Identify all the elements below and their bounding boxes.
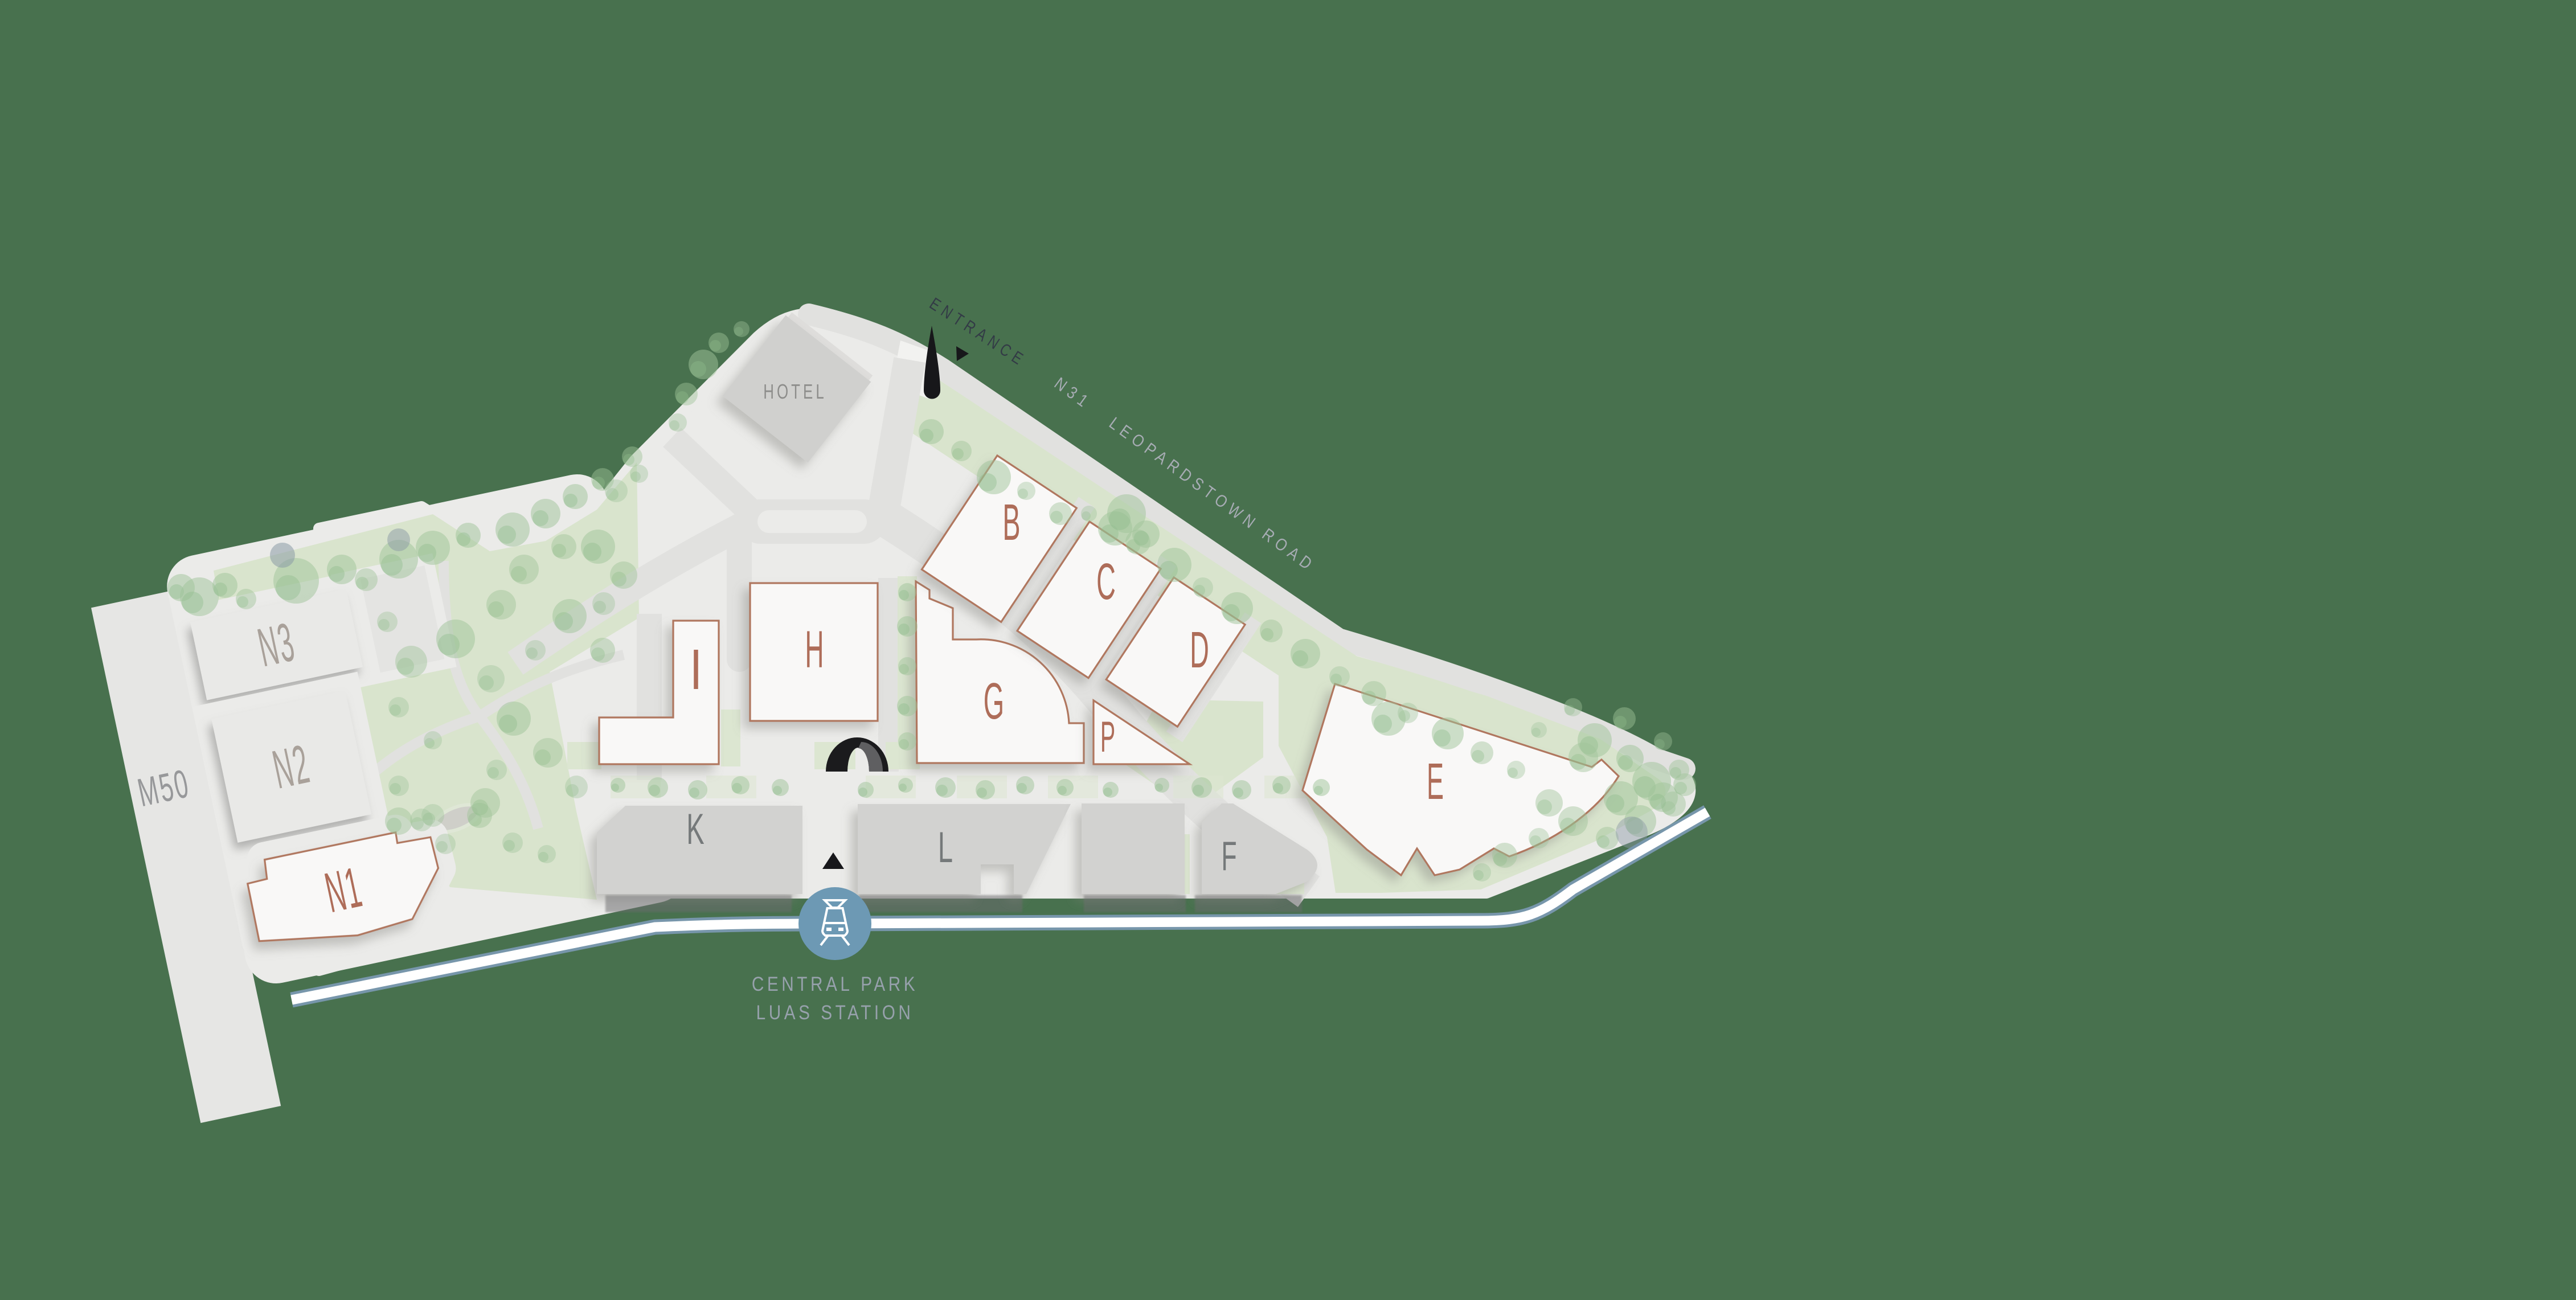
svg-text:P: P xyxy=(1100,712,1115,761)
svg-text:C: C xyxy=(1096,553,1116,610)
svg-text:I: I xyxy=(690,638,702,702)
svg-text:CENTRAL PARK: CENTRAL PARK xyxy=(752,973,918,995)
svg-text:E: E xyxy=(1427,753,1444,810)
svg-text:LUAS STATION: LUAS STATION xyxy=(756,1002,914,1024)
svg-text:B: B xyxy=(1002,494,1020,551)
svg-text:H: H xyxy=(805,621,824,679)
svg-text:HOTEL: HOTEL xyxy=(763,380,827,403)
svg-text:K: K xyxy=(686,806,704,854)
svg-text:F: F xyxy=(1221,833,1236,879)
svg-text:G: G xyxy=(984,673,1004,730)
svg-text:L: L xyxy=(938,824,953,872)
svg-text:D: D xyxy=(1190,622,1209,679)
